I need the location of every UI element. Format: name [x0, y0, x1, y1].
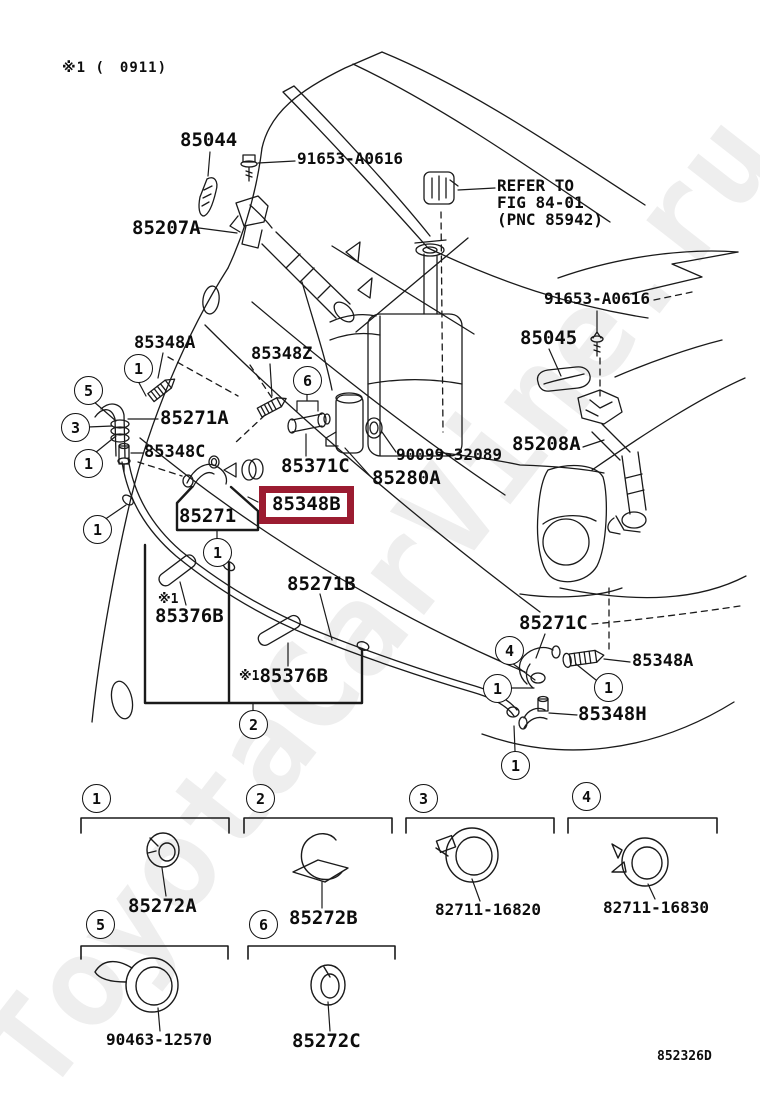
legend-circle-5: 5: [86, 910, 115, 939]
footnote-header: ※1 ( 0911): [62, 61, 167, 76]
callout-circle-2: 2: [239, 710, 268, 739]
callout-circle-1: 1: [83, 515, 112, 544]
callout-circle-1: 1: [594, 673, 623, 702]
part-label-85207a: 85207A: [132, 219, 201, 239]
part-label-85271: 85271: [179, 507, 236, 527]
part-label-85376b-right-group: ※185376B: [239, 667, 328, 687]
legend-circle-6: 6: [249, 910, 278, 939]
legend-clip-drawings: [95, 828, 668, 1012]
refer-part: [424, 172, 458, 204]
refer-note: REFER TO FIG 84-01 (PNC 85942): [497, 178, 603, 228]
callout-circle-1: 1: [74, 449, 103, 478]
legend-circle-2: 2: [246, 784, 275, 813]
part-label-90099-32089: 90099-32089: [396, 447, 502, 464]
callout-circle-1: 1: [501, 751, 530, 780]
part-label-85208a: 85208A: [512, 435, 581, 455]
part-label-85271b: 85271B: [287, 575, 356, 595]
part-label-85371c: 85371C: [281, 457, 350, 477]
part-label-91653-a0616-right: 91653-A0616: [544, 291, 650, 308]
parts-diagram-page: ToyotaCarVine.ru: [0, 0, 760, 1112]
bolt-top: [241, 155, 257, 181]
part-label-85045: 85045: [520, 329, 577, 349]
car-body-lines: [92, 52, 746, 750]
part-label-85348z: 85348Z: [251, 346, 312, 364]
legend-part-82711-16830: 82711-16830: [603, 900, 709, 917]
part-label-85376b-right: 85376B: [259, 665, 328, 687]
part-label-85348b-highlighted: 85348B: [259, 486, 354, 524]
figure-code: 852326D: [657, 1050, 712, 1064]
legend-circle-4: 4: [572, 782, 601, 811]
refer-note-line3: (PNC 85942): [497, 212, 603, 229]
part-label-85271c: 85271C: [519, 614, 588, 634]
right-nozzle-cover: [537, 367, 590, 391]
callout-circle-5: 5: [74, 376, 103, 405]
bolt-right: [591, 332, 603, 356]
part-label-91653-a0616-top: 91653-A0616: [297, 151, 403, 168]
callout-circle-3: 3: [61, 413, 90, 442]
callout-circle-4: 4: [495, 636, 524, 665]
legend-circle-1: 1: [82, 784, 111, 813]
callout-circle-1: 1: [483, 674, 512, 703]
legend-part-82711-16820: 82711-16820: [435, 902, 541, 919]
legend-part-85272a: 85272A: [128, 897, 197, 917]
part-label-85044: 85044: [180, 131, 237, 151]
legend-part-90463-12570: 90463-12570: [106, 1032, 212, 1049]
part-label-85280a: 85280A: [372, 469, 441, 489]
part-label-85348a-left: 85348A: [134, 335, 195, 353]
legend-brackets: [81, 818, 717, 959]
callout-circle-1: 1: [124, 354, 153, 383]
part-label-85348h: 85348H: [578, 705, 647, 725]
right-actuator: [578, 390, 646, 534]
legend-part-85272c: 85272C: [292, 1032, 361, 1052]
callout-circle-1: 1: [203, 538, 232, 567]
callout-circle-6: 6: [293, 366, 322, 395]
part-label-85348c: 85348C: [144, 444, 205, 462]
legend-part-85272b: 85272B: [289, 909, 358, 929]
part-label-85348a-right: 85348A: [632, 653, 693, 671]
fog-lamp-bezel: [538, 466, 607, 582]
part-label-85376b-left: 85376B: [155, 607, 224, 627]
legend-circle-3: 3: [409, 784, 438, 813]
part-label-85271a: 85271A: [160, 409, 229, 429]
footnote-mark-right: ※1: [239, 669, 259, 684]
